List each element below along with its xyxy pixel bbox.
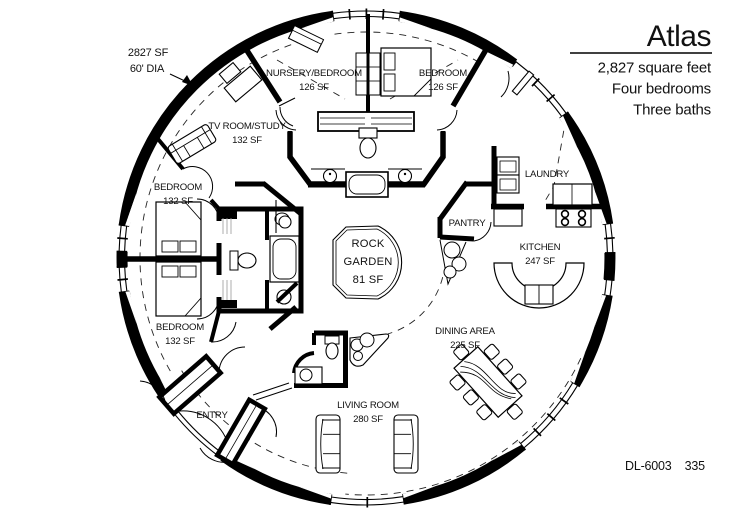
svg-text:DINING AREA: DINING AREA [435, 326, 495, 337]
svg-text:132 SF: 132 SF [165, 336, 195, 347]
svg-text:PANTRY: PANTRY [449, 218, 487, 229]
svg-text:126 SF: 126 SF [299, 82, 329, 93]
svg-text:247 SF: 247 SF [525, 256, 555, 267]
svg-text:DL-6003 335: DL-6003 335 [625, 459, 705, 473]
svg-text:280 SF: 280 SF [353, 414, 383, 425]
svg-text:81 SF: 81 SF [353, 274, 384, 286]
svg-text:126 SF: 126 SF [428, 82, 458, 93]
svg-text:BEDROOM: BEDROOM [154, 182, 202, 193]
svg-text:BEDROOM: BEDROOM [419, 68, 467, 79]
svg-text:LAUNDRY: LAUNDRY [525, 169, 570, 180]
svg-text:NURSERY/BEDROOM: NURSERY/BEDROOM [266, 68, 362, 79]
svg-text:ENTRY: ENTRY [196, 410, 228, 421]
svg-text:132 SF: 132 SF [163, 196, 193, 207]
svg-text:Atlas: Atlas [647, 20, 711, 53]
svg-text:225 SF: 225 SF [450, 340, 480, 351]
svg-text:GARDEN: GARDEN [343, 256, 392, 268]
svg-text:Four bedrooms: Four bedrooms [612, 81, 711, 98]
svg-text:TV ROOM/STUDY: TV ROOM/STUDY [208, 121, 286, 132]
svg-text:60' DIA: 60' DIA [130, 63, 165, 75]
svg-text:Three baths: Three baths [633, 102, 711, 119]
svg-text:ROCK: ROCK [351, 238, 384, 250]
svg-text:LIVING ROOM: LIVING ROOM [337, 400, 399, 411]
svg-text:2827 SF: 2827 SF [128, 47, 169, 59]
svg-text:BEDROOM: BEDROOM [156, 322, 204, 333]
svg-text:KITCHEN: KITCHEN [520, 242, 561, 253]
svg-text:132 SF: 132 SF [232, 135, 262, 146]
svg-text:2,827 square feet: 2,827 square feet [598, 60, 712, 77]
